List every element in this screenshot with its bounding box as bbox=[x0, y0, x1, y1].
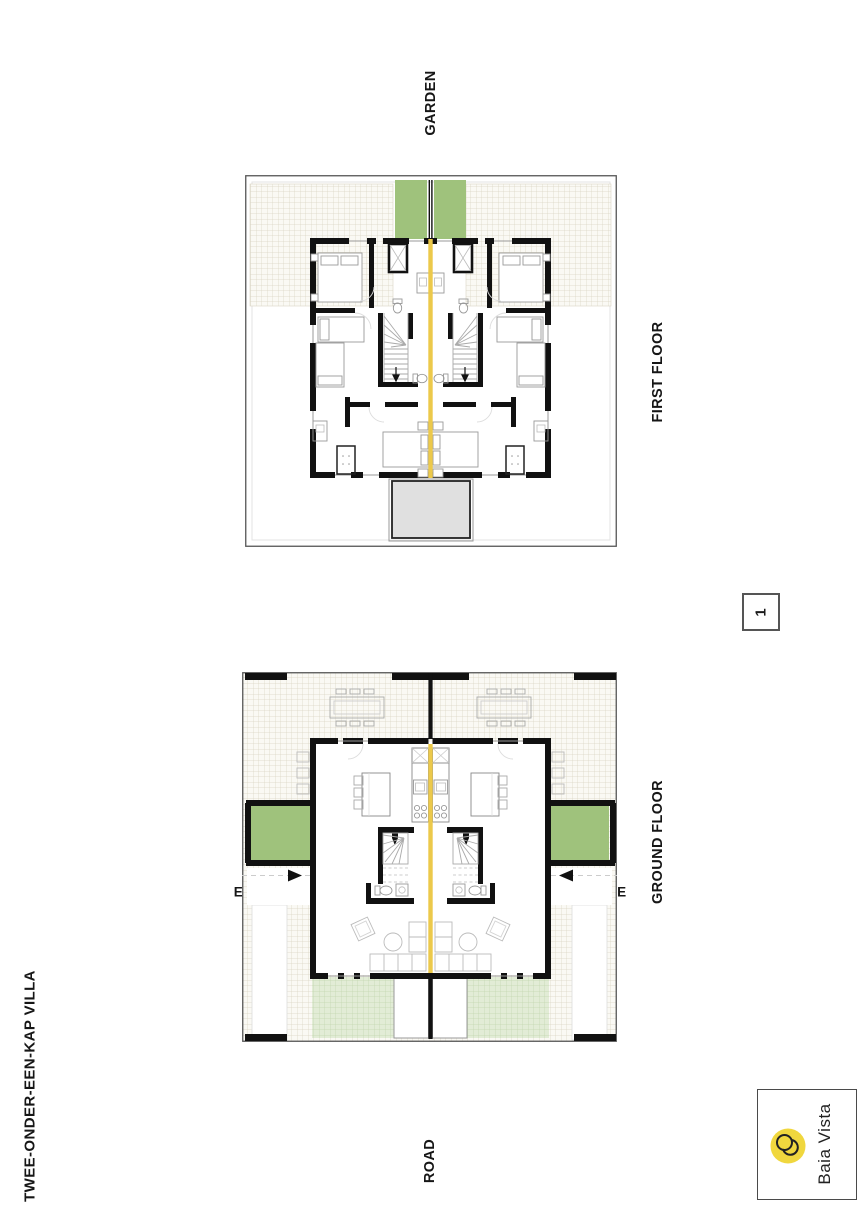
ground-floor-plan bbox=[242, 672, 617, 1042]
drawing-sheet: TWEE-ONDER-EEN-KAP VILLA GARDEN ROAD FIR… bbox=[0, 0, 861, 1220]
entrance-canopy-roof bbox=[392, 481, 470, 538]
front-terrace-right bbox=[467, 977, 549, 1038]
party-wall-line bbox=[428, 239, 432, 478]
logo-box: Baia Vista bbox=[757, 1089, 857, 1200]
garden-label: GARDEN bbox=[423, 70, 439, 135]
baia-vista-logo-icon bbox=[770, 1128, 806, 1164]
road-label: ROAD bbox=[422, 1139, 438, 1183]
first-floor-plan bbox=[245, 175, 617, 547]
balcony-green-left bbox=[395, 180, 427, 239]
page-number-box: 1 bbox=[742, 593, 780, 631]
party-wall-line bbox=[428, 744, 432, 973]
page-number: 1 bbox=[753, 608, 770, 616]
storage-green-right bbox=[549, 804, 609, 862]
first-floor-label: FIRST FLOOR bbox=[650, 321, 666, 422]
storage-green-left bbox=[250, 804, 310, 862]
logo-text: Baia Vista bbox=[815, 1103, 835, 1184]
front-terrace-left bbox=[312, 977, 394, 1038]
sheet-title: TWEE-ONDER-EEN-KAP VILLA bbox=[22, 970, 39, 1202]
balcony-green-right bbox=[434, 180, 466, 239]
ground-floor-label: GROUND FLOOR bbox=[650, 780, 666, 904]
